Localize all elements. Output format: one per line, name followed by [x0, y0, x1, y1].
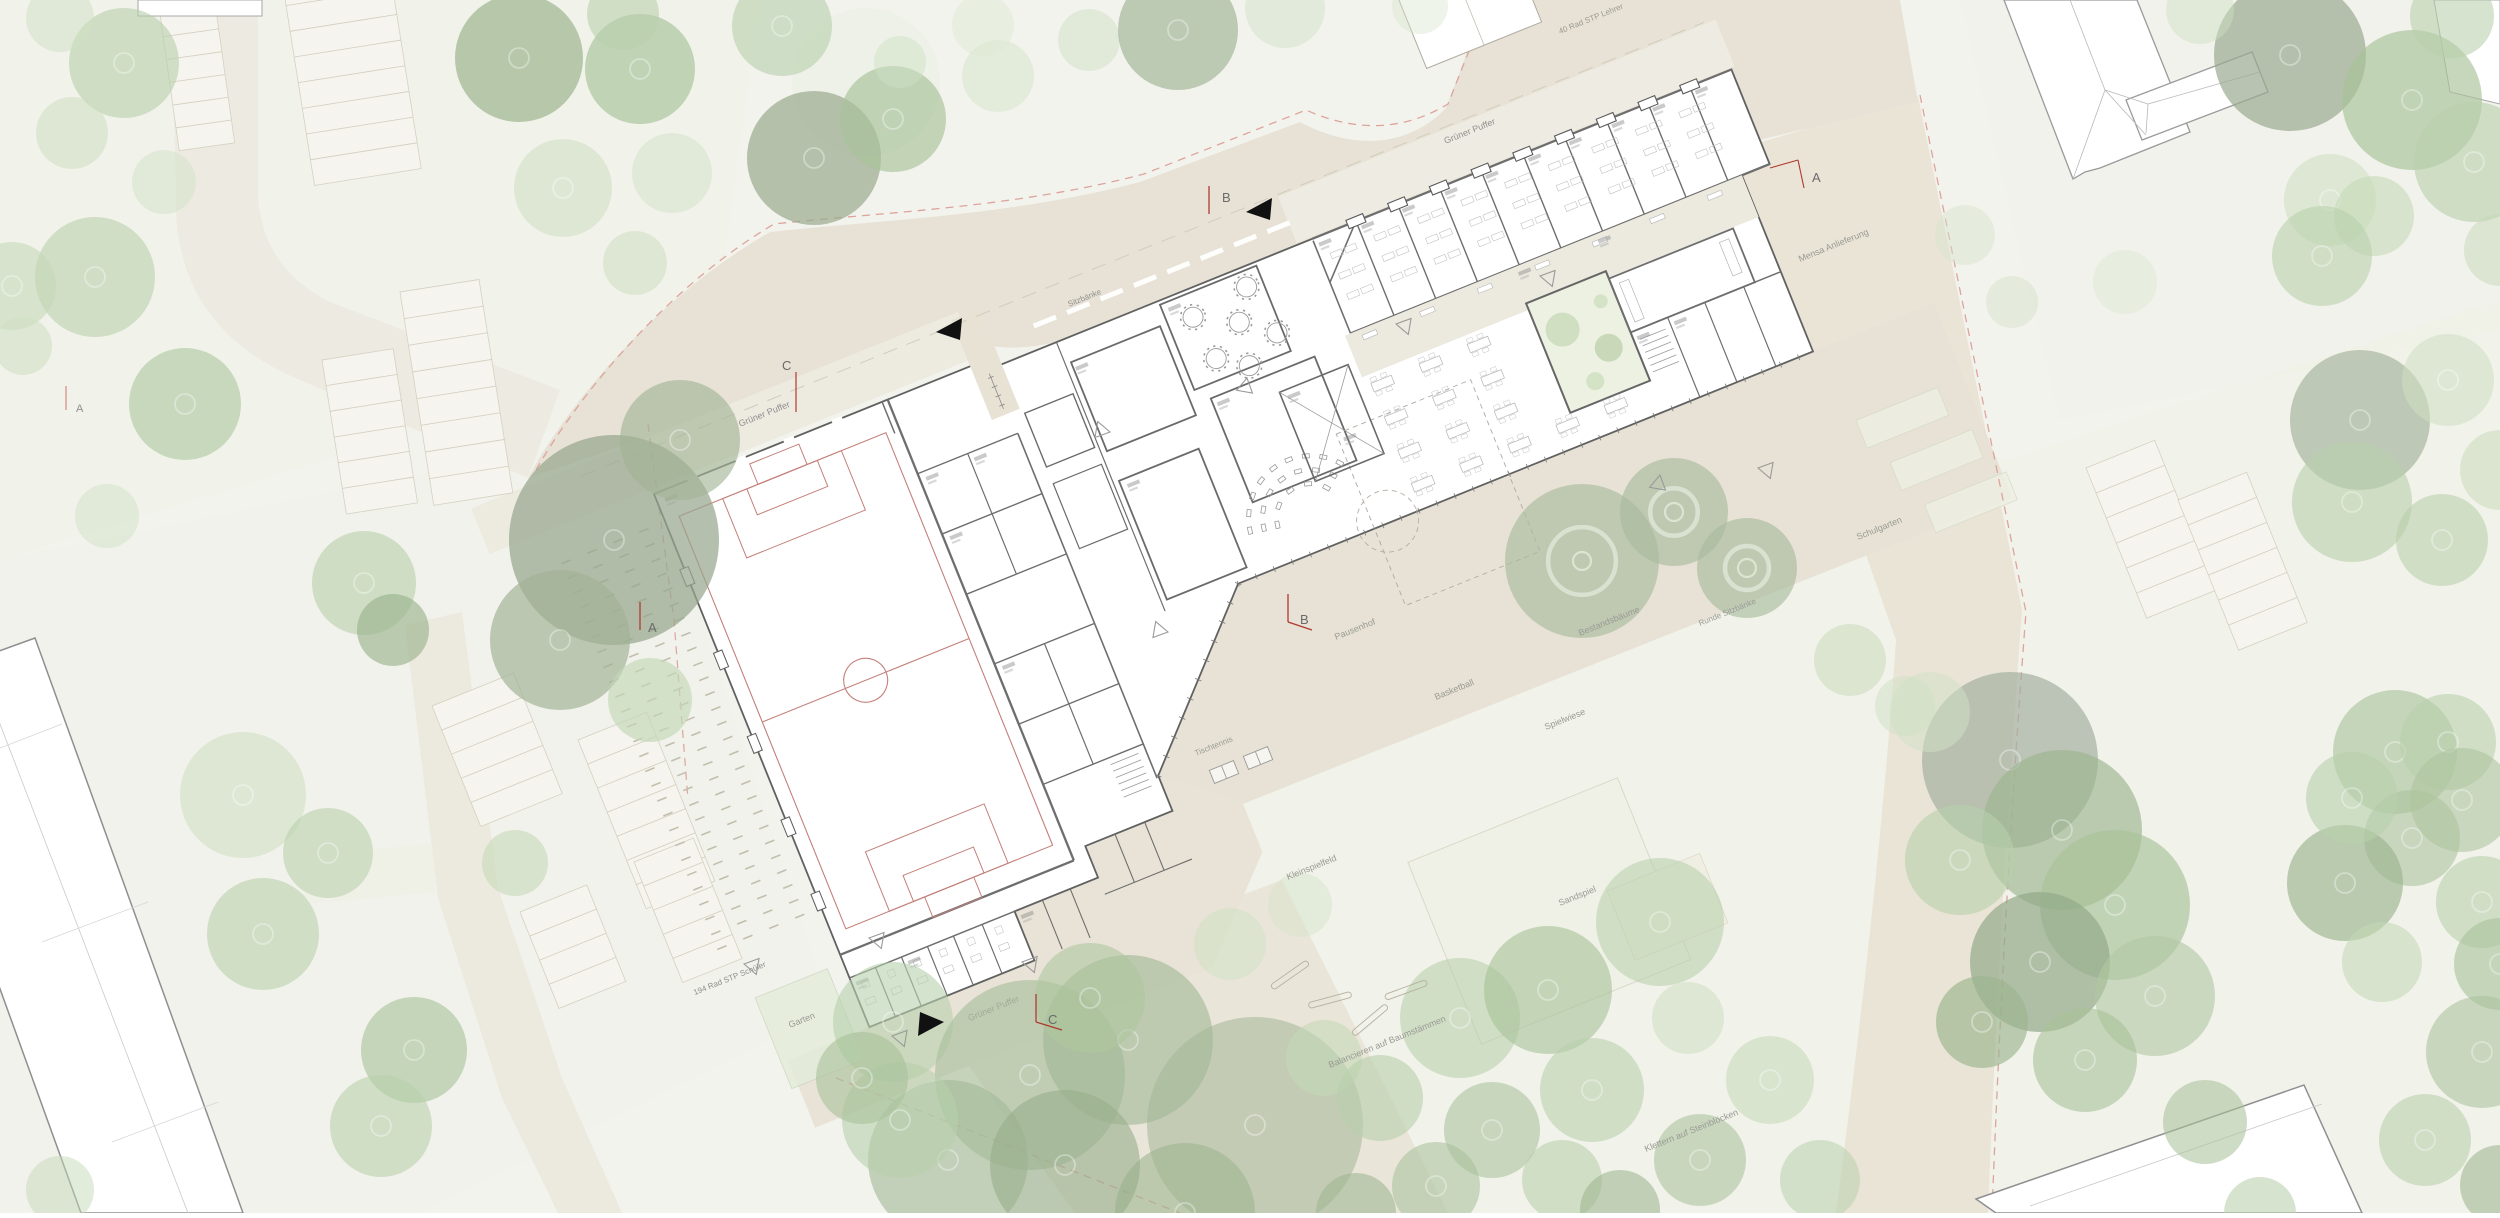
svg-text:B: B	[1222, 190, 1231, 205]
svg-text:A: A	[648, 620, 657, 635]
svg-text:A: A	[76, 403, 84, 415]
svg-text:C: C	[1048, 1012, 1057, 1027]
svg-text:C: C	[782, 358, 791, 373]
svg-text:A: A	[1812, 170, 1821, 185]
svg-text:B: B	[1300, 612, 1309, 627]
